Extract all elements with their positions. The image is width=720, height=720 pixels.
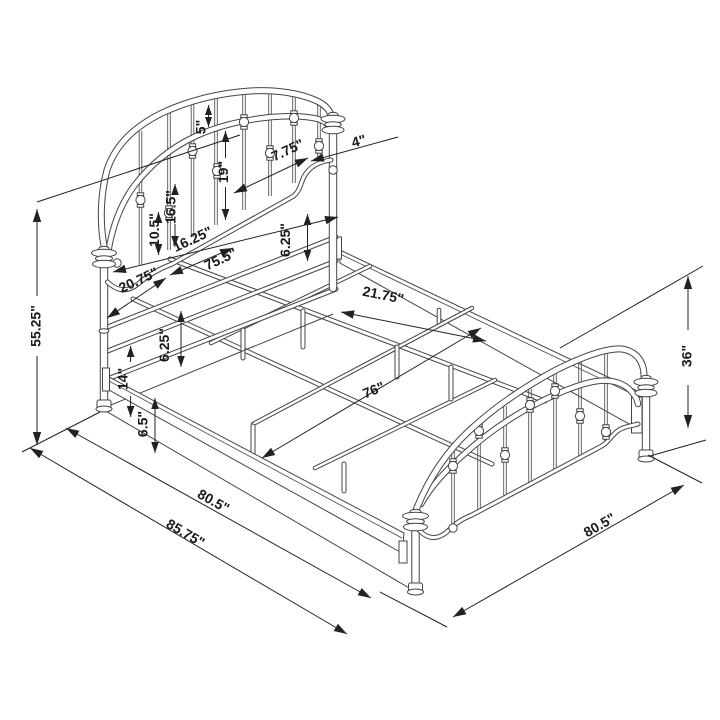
svg-text:19": 19" bbox=[215, 161, 231, 183]
svg-text:36": 36" bbox=[679, 345, 695, 367]
svg-text:14": 14" bbox=[115, 368, 131, 390]
svg-text:6.25": 6.25" bbox=[156, 328, 172, 362]
svg-text:10.5": 10.5" bbox=[146, 213, 162, 247]
svg-text:6.5": 6.5" bbox=[135, 411, 151, 437]
svg-text:6.25": 6.25" bbox=[277, 223, 293, 257]
svg-text:55.25": 55.25" bbox=[28, 305, 44, 347]
svg-text:5": 5" bbox=[193, 120, 209, 134]
svg-text:16.5": 16.5" bbox=[163, 190, 179, 224]
